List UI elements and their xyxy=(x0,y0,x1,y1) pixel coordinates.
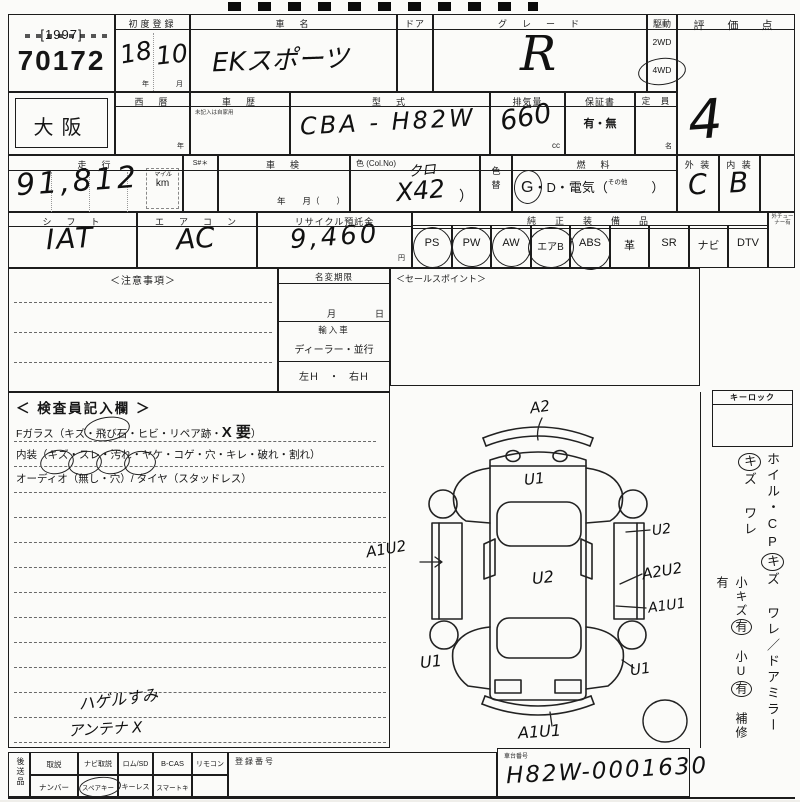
cell-keyless: キーレス xyxy=(118,775,153,797)
color-label: 色 (Col.No) xyxy=(356,158,396,169)
name-change-underline xyxy=(279,283,389,284)
insp-rule-4 xyxy=(14,517,386,518)
sidebar-ari-circle-2: 有 xyxy=(731,681,752,697)
s-label: S#＊ xyxy=(184,158,217,168)
insp-rule-3 xyxy=(14,492,386,493)
audio-tire-line: オーディオ（無し・穴）/ タイヤ（スタッドレス） xyxy=(16,471,252,486)
cell-lot: [1997] 70172 xyxy=(8,14,115,92)
cell-registration-number: 登録番号 xyxy=(228,752,497,797)
sidebar-small-u: 小U xyxy=(734,636,748,680)
cell-notes: ＜注意事項＞ xyxy=(8,268,278,392)
clipped-title-fragment xyxy=(228,2,538,11)
insp-rule-6 xyxy=(14,567,386,568)
damage-note-roof: U2 xyxy=(531,567,555,588)
first-reg-month-value: 10 xyxy=(155,38,190,70)
cell-keylock: キーロック xyxy=(712,390,793,447)
row3-header-underline xyxy=(8,170,677,171)
damage-note-front-bumper: A2 xyxy=(529,397,551,418)
calendar-unit: 年 xyxy=(177,141,184,151)
cell-bottom-empty xyxy=(192,775,228,797)
color-paren: ） xyxy=(459,186,473,206)
equip-cell-navi: ナビ xyxy=(689,225,728,268)
damage-note-right-rear-door: U1 xyxy=(629,659,652,680)
sheet-bottom-line xyxy=(8,797,795,799)
equip-cell-sr: SR xyxy=(649,225,689,268)
number-plate-label: ナンバー xyxy=(31,782,77,793)
cell-capacity: 定 員 名 xyxy=(635,92,677,155)
inspector-hand-note-2: アンテナ X xyxy=(68,716,143,741)
fglass-close: ） xyxy=(251,428,262,440)
mileage-unit-box: マイル km xyxy=(146,168,179,209)
row1-header-underline xyxy=(115,29,795,30)
sales-points-label: ＜セールスポイント＞ xyxy=(396,272,486,285)
first-reg-year-value: 18 xyxy=(118,35,154,69)
insp-rule-5 xyxy=(14,542,386,543)
exterior-value: C xyxy=(686,167,709,202)
notes-line-1 xyxy=(14,302,272,303)
equip-cell-dtv: DTV xyxy=(728,225,768,268)
damage-note-hood: U1 xyxy=(523,469,545,489)
sidebar-ari-circle-1: 有 xyxy=(731,619,752,635)
cell-rom-sd: ロム/SD xyxy=(118,752,153,775)
equip-sr: SR xyxy=(650,237,688,249)
rom-sd-label: ロム/SD xyxy=(119,759,152,769)
cell-remote: リモコン xyxy=(192,752,228,775)
import-top-line xyxy=(279,321,389,322)
cell-warranty: 保証書 有・無 xyxy=(565,92,635,155)
equip-leather: 革 xyxy=(611,237,648,253)
sidebar-wheel-cp: ホイル・CP xyxy=(765,452,780,552)
cell-color-change: 色 替 xyxy=(480,155,512,212)
steering-options: 左Ｈ ・ 右Ｈ xyxy=(279,368,389,383)
month-unit-label: 月 xyxy=(327,307,336,320)
cell-s-number: S#＊ xyxy=(183,155,218,212)
history-note: 未記入は自家用 xyxy=(195,108,234,116)
cell-sales-points: ＜セールスポイント＞ xyxy=(390,268,700,386)
later-items-label: 後送品 xyxy=(15,757,26,797)
insp-rule-8 xyxy=(14,617,386,618)
fglass-mid: ・ヒビ・リペア跡・ xyxy=(127,428,222,440)
damage-note-left-rear: U1 xyxy=(419,651,443,672)
sidebar-kizu-circle-2: キ xyxy=(738,453,761,471)
import-label: 輸入車 xyxy=(279,324,389,336)
score-value: 4 xyxy=(686,87,725,152)
fuel-close-paren: ） xyxy=(651,180,664,195)
sidebar-divider xyxy=(700,392,701,748)
inspector-title: ＜ 検査員記入欄 ＞ xyxy=(16,397,152,417)
capacity-unit: 名 xyxy=(665,141,672,151)
cell-door: ドア xyxy=(397,14,433,92)
day-unit-label: 日 xyxy=(375,307,384,320)
warranty-options: 有・無 xyxy=(566,115,634,131)
sidebar-note-small-scratch: 小キズ有 小U有 補修有 xyxy=(714,576,752,746)
tuner-note: 外チューナー有 xyxy=(770,214,795,226)
registration-number-label: 登録番号 xyxy=(235,756,275,767)
keylock-label: キーロック xyxy=(713,391,792,405)
insp-rule-12 xyxy=(14,717,386,718)
name-change-label: 名変期限 xyxy=(279,271,389,283)
recycle-value: 9,460 xyxy=(289,219,380,255)
cell-name-change: 名変期限 月 日 輸入車 ディーラー・並行 左Ｈ ・ 右Ｈ xyxy=(278,268,390,392)
cell-tuner-note: 外チューナー有 xyxy=(768,212,795,268)
grade-value: R xyxy=(520,26,556,82)
lot-bracket-year: [1997] xyxy=(9,27,114,42)
row2-header-underline xyxy=(115,106,677,107)
notes-line-3 xyxy=(14,362,272,363)
keyless-label: キーレス xyxy=(119,782,152,792)
cell-bcas: B-CAS xyxy=(153,752,192,775)
row4-header-underline xyxy=(8,226,412,227)
cell-manual: 取説 xyxy=(30,752,78,775)
fuel-other-label: その他 xyxy=(608,179,628,186)
steering-top-line xyxy=(279,361,389,362)
manual-label: 取説 xyxy=(31,759,77,770)
equip-dtv: DTV xyxy=(729,237,767,249)
import-type: ディーラー・並行 xyxy=(279,341,389,356)
shaken-units: 年 月（ ） xyxy=(277,195,345,207)
insp-rule-2 xyxy=(14,466,384,467)
interior-value: B xyxy=(728,166,749,200)
notes-line-2 xyxy=(14,332,272,333)
cell-shaken: 車 検 年 月（ ） xyxy=(218,155,350,212)
insp-rule-7 xyxy=(14,592,386,593)
lot-number: 70172 xyxy=(9,45,114,77)
color-code-value: X42 xyxy=(395,174,446,207)
cell-calendar: 西 暦 年 xyxy=(115,92,190,155)
bcas-label: B-CAS xyxy=(154,759,191,768)
cell-navi-manual: ナビ取説 xyxy=(78,752,118,775)
insp-rule-9 xyxy=(14,642,386,643)
cell-history: 車 歴 未記入は自家用 xyxy=(190,92,290,155)
insp-rule-11 xyxy=(14,692,386,693)
sidebar-small-kizu: 小キズ xyxy=(734,576,748,618)
drive-2wd: 2WD xyxy=(648,37,676,47)
notes-label: ＜注意事項＞ xyxy=(9,272,277,287)
empty-check-circle xyxy=(643,700,687,742)
damage-note-rear-bumper: A1U1 xyxy=(517,721,561,743)
damage-note-right-front: U2 xyxy=(651,521,672,540)
sidebar-ware-2: ズ ワレ xyxy=(742,472,757,538)
fglass-line: Fガラス（キズ・飛び石・ヒビ・リペア跡・X 要） xyxy=(16,421,261,442)
fuel-options-rest: ・D・電気（ xyxy=(533,180,607,195)
equip-cell-leather: 革 xyxy=(610,225,649,268)
year-unit: 年 xyxy=(142,79,149,89)
auction-sheet: [1997] 70172 初度登録 年 月 18 10 車 名 EKスポーツ ド… xyxy=(0,0,800,800)
sidebar-ware-mirror: ズ ワレ／ドアミラー xyxy=(765,572,780,734)
insp-rule-13 xyxy=(14,742,386,743)
prefecture-value: 大阪 xyxy=(16,111,107,140)
smart-key-label: スマートキー xyxy=(154,782,191,802)
km-unit: km xyxy=(147,178,178,189)
recycle-unit: 円 xyxy=(398,253,405,263)
insp-rule-10 xyxy=(14,667,386,668)
equip-navi: ナビ xyxy=(690,237,727,253)
cell-number-plate: ナンバー xyxy=(30,775,78,797)
il-rest: ・コゲ・穴・キレ・破れ・割れ） xyxy=(163,449,321,461)
insp-rule-1 xyxy=(14,441,376,442)
color-change-label-2: 替 xyxy=(481,178,511,191)
remote-label: リモコン xyxy=(193,759,227,769)
car-name-value: EKスポーツ xyxy=(211,38,349,80)
displacement-unit: cc xyxy=(552,141,560,150)
cell-inspector-area xyxy=(8,392,390,748)
prefecture-inner-box: 大阪 xyxy=(15,98,108,148)
fglass-x-required: X 要 xyxy=(222,424,251,441)
month-unit: 月 xyxy=(176,79,183,89)
chassis-number-label: 車台番号 xyxy=(504,751,528,760)
score-label: 評 価 点 xyxy=(678,17,794,33)
navi-manual-label: ナビ取説 xyxy=(79,759,117,769)
sidebar-kizu-circle-1: キ xyxy=(761,553,784,571)
cell-smart-key: スマートキー xyxy=(153,775,192,797)
cell-later-items: 後送品 xyxy=(8,752,30,797)
cell-row3-spare xyxy=(760,155,795,212)
